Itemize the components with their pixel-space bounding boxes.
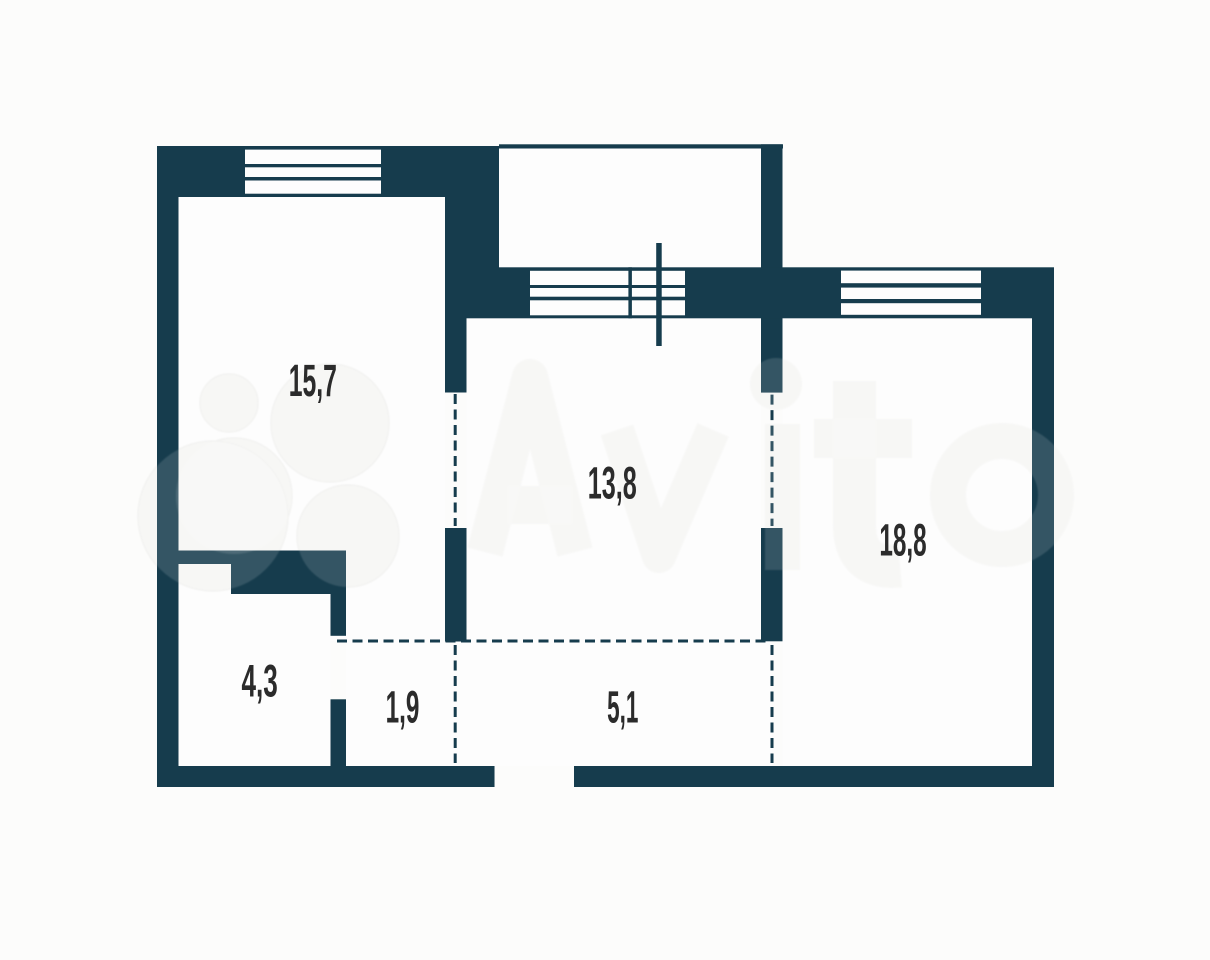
svg-text:18,8: 18,8 xyxy=(879,515,926,566)
svg-text:5,1: 5,1 xyxy=(607,682,638,733)
svg-text:1,9: 1,9 xyxy=(386,681,420,732)
svg-text:13,8: 13,8 xyxy=(588,458,637,509)
svg-text:4,3: 4,3 xyxy=(241,656,277,706)
svg-text:15,7: 15,7 xyxy=(289,355,337,406)
